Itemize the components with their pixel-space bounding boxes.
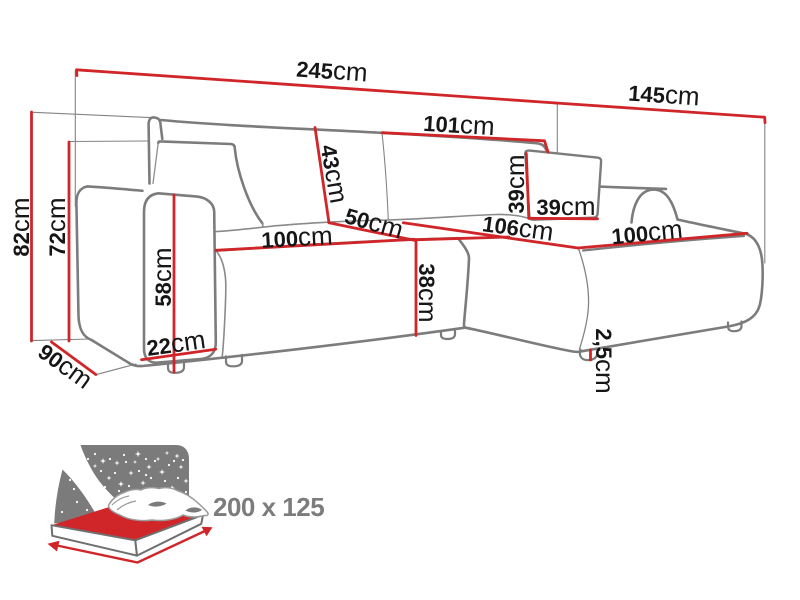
svg-text:58cm: 58cm — [147, 247, 177, 306]
svg-text:39cm: 39cm — [536, 191, 595, 221]
svg-text:200 x 125: 200 x 125 — [213, 492, 324, 522]
svg-text:38cm: 38cm — [413, 263, 443, 322]
svg-text:39cm: 39cm — [500, 154, 530, 213]
svg-text:82cm: 82cm — [5, 197, 35, 256]
svg-text:101cm: 101cm — [423, 107, 496, 141]
svg-text:72cm: 72cm — [41, 197, 71, 256]
svg-text:2,5cm: 2,5cm — [590, 328, 620, 393]
